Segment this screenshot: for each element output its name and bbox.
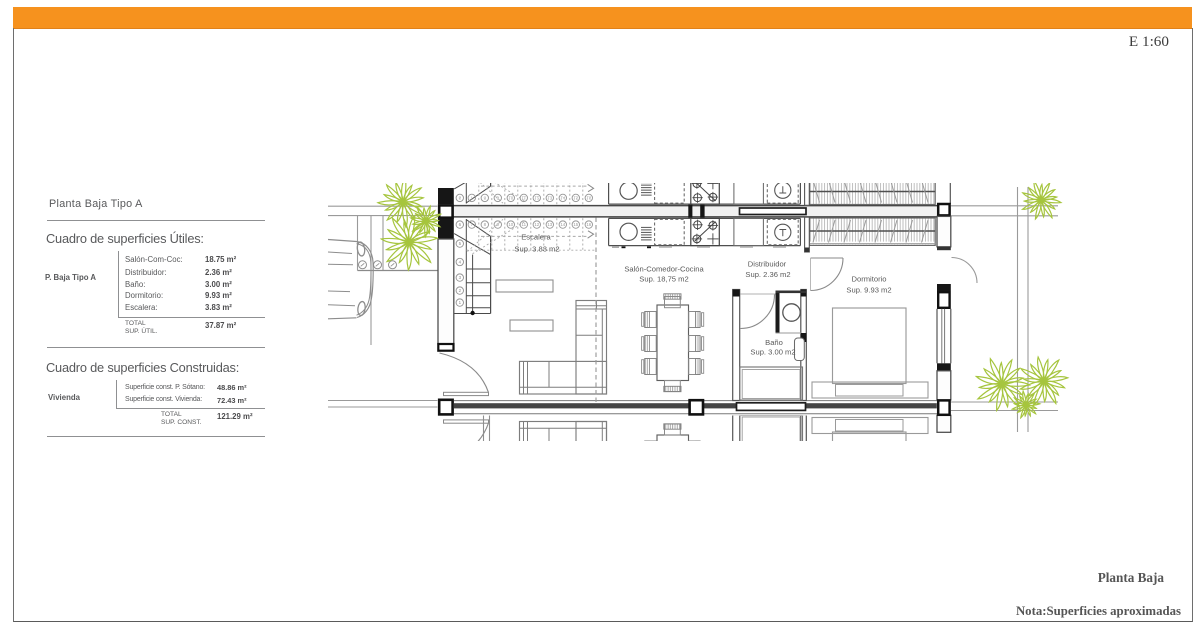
svg-text:13: 13 xyxy=(547,222,552,227)
svg-text:Escalera: Escalera xyxy=(521,233,551,242)
svg-text:Sup. 3.83 m2: Sup. 3.83 m2 xyxy=(514,245,559,254)
svg-text:8: 8 xyxy=(484,222,487,227)
svg-text:12: 12 xyxy=(534,222,539,227)
svg-text:Sup. 18,75 m2: Sup. 18,75 m2 xyxy=(639,275,688,284)
svg-text:15: 15 xyxy=(573,222,578,227)
svg-text:1: 1 xyxy=(459,300,462,305)
svg-text:3: 3 xyxy=(459,275,462,280)
svg-text:Dormitorio: Dormitorio xyxy=(851,275,886,284)
svg-text:Sup. 2.36 m2: Sup. 2.36 m2 xyxy=(745,270,790,279)
svg-text:Sup. 3.00 m2: Sup. 3.00 m2 xyxy=(750,348,795,357)
svg-text:16: 16 xyxy=(586,222,591,227)
svg-text:6: 6 xyxy=(459,222,462,227)
svg-text:2: 2 xyxy=(459,288,462,293)
svg-text:Sup. 9.93 m2: Sup. 9.93 m2 xyxy=(846,286,891,295)
svg-text:14: 14 xyxy=(560,222,565,227)
svg-text:11: 11 xyxy=(522,222,527,227)
svg-text:Salón-Comedor-Cocina: Salón-Comedor-Cocina xyxy=(624,265,704,274)
svg-text:5: 5 xyxy=(459,241,462,246)
svg-text:4: 4 xyxy=(459,260,462,265)
svg-text:Distribuidor: Distribuidor xyxy=(748,260,787,269)
svg-text:10: 10 xyxy=(508,222,513,227)
svg-text:Baño: Baño xyxy=(765,338,783,347)
